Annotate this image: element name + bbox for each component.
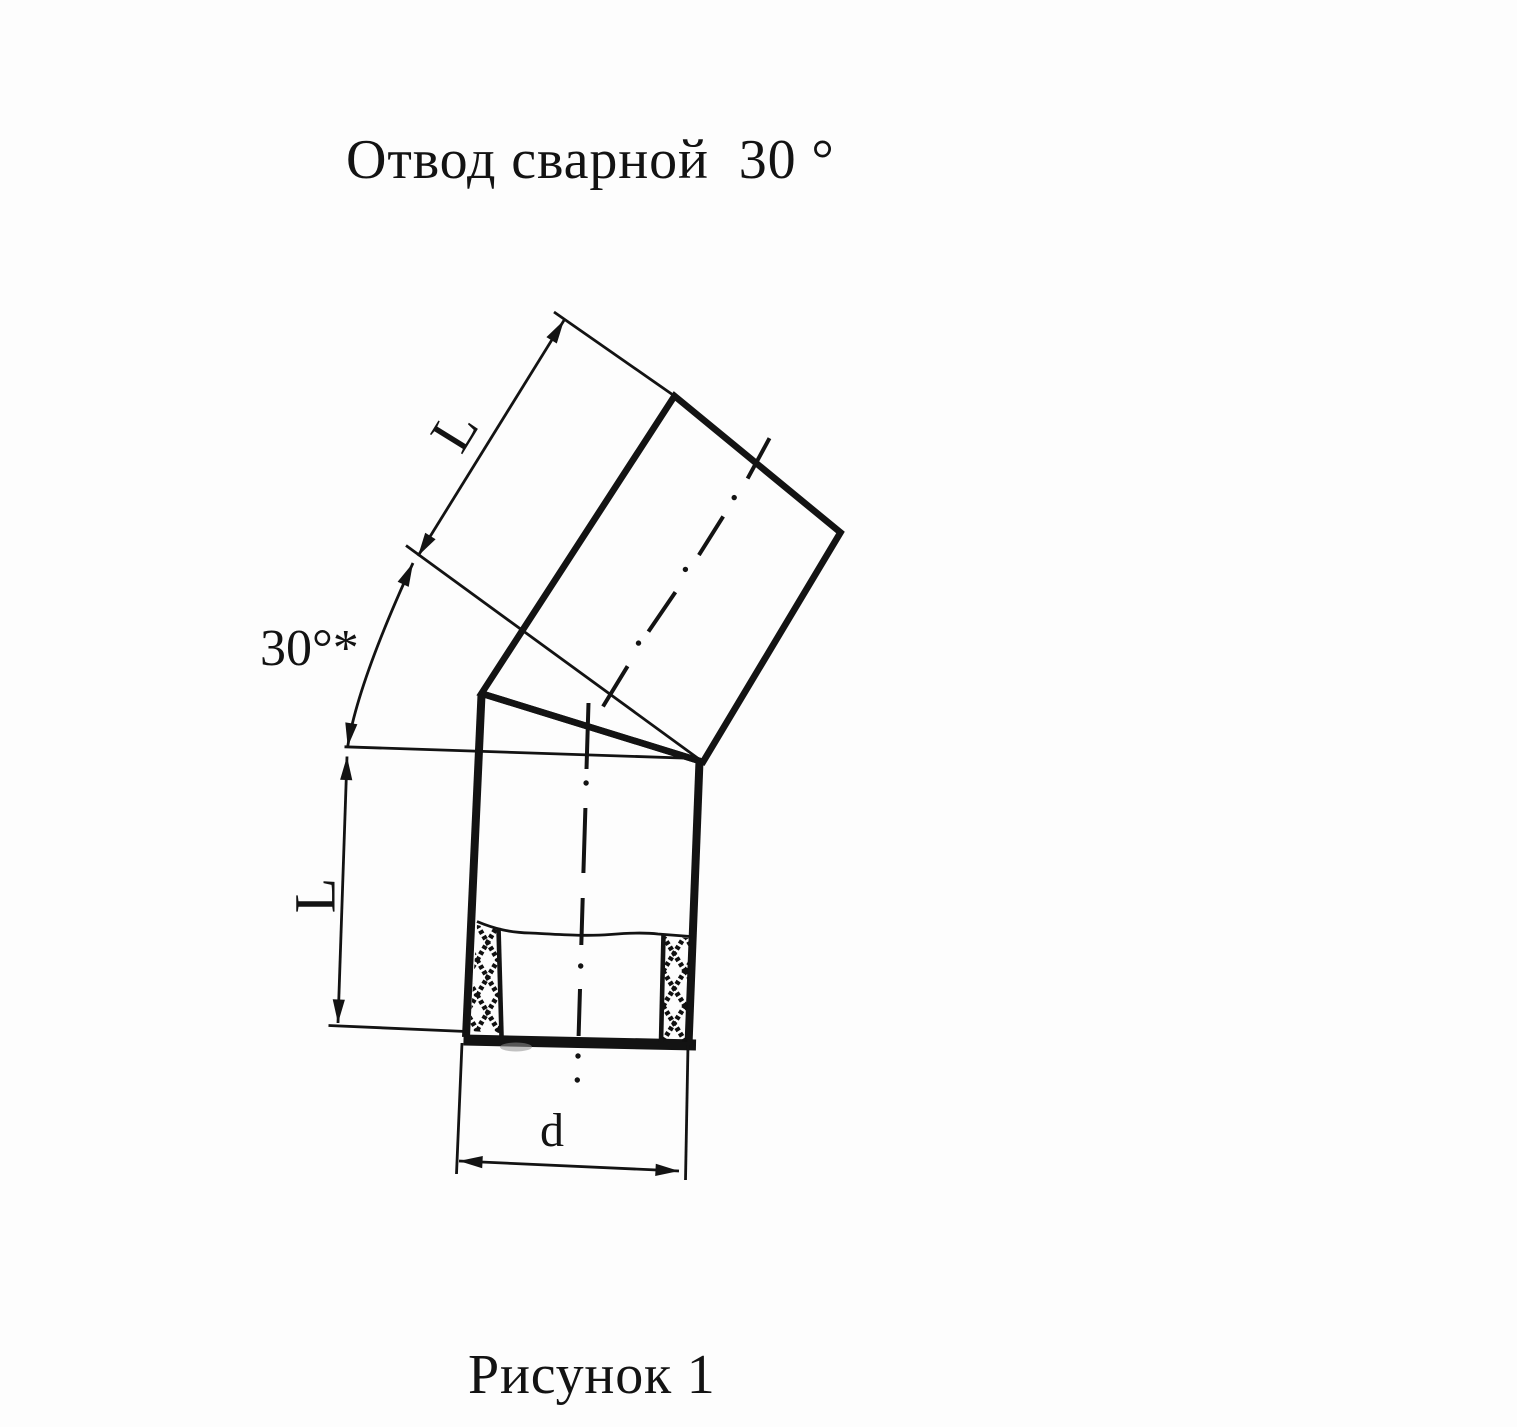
svg-text:L: L (283, 878, 348, 913)
svg-text:30°*: 30°* (260, 620, 359, 677)
svg-text:L: L (417, 398, 491, 462)
svg-text:Отвод сварной 30 °: Отвод сварной 30 ° (346, 129, 835, 191)
svg-text:Рисунок 1: Рисунок 1 (468, 1344, 716, 1406)
svg-text:d: d (540, 1104, 564, 1157)
